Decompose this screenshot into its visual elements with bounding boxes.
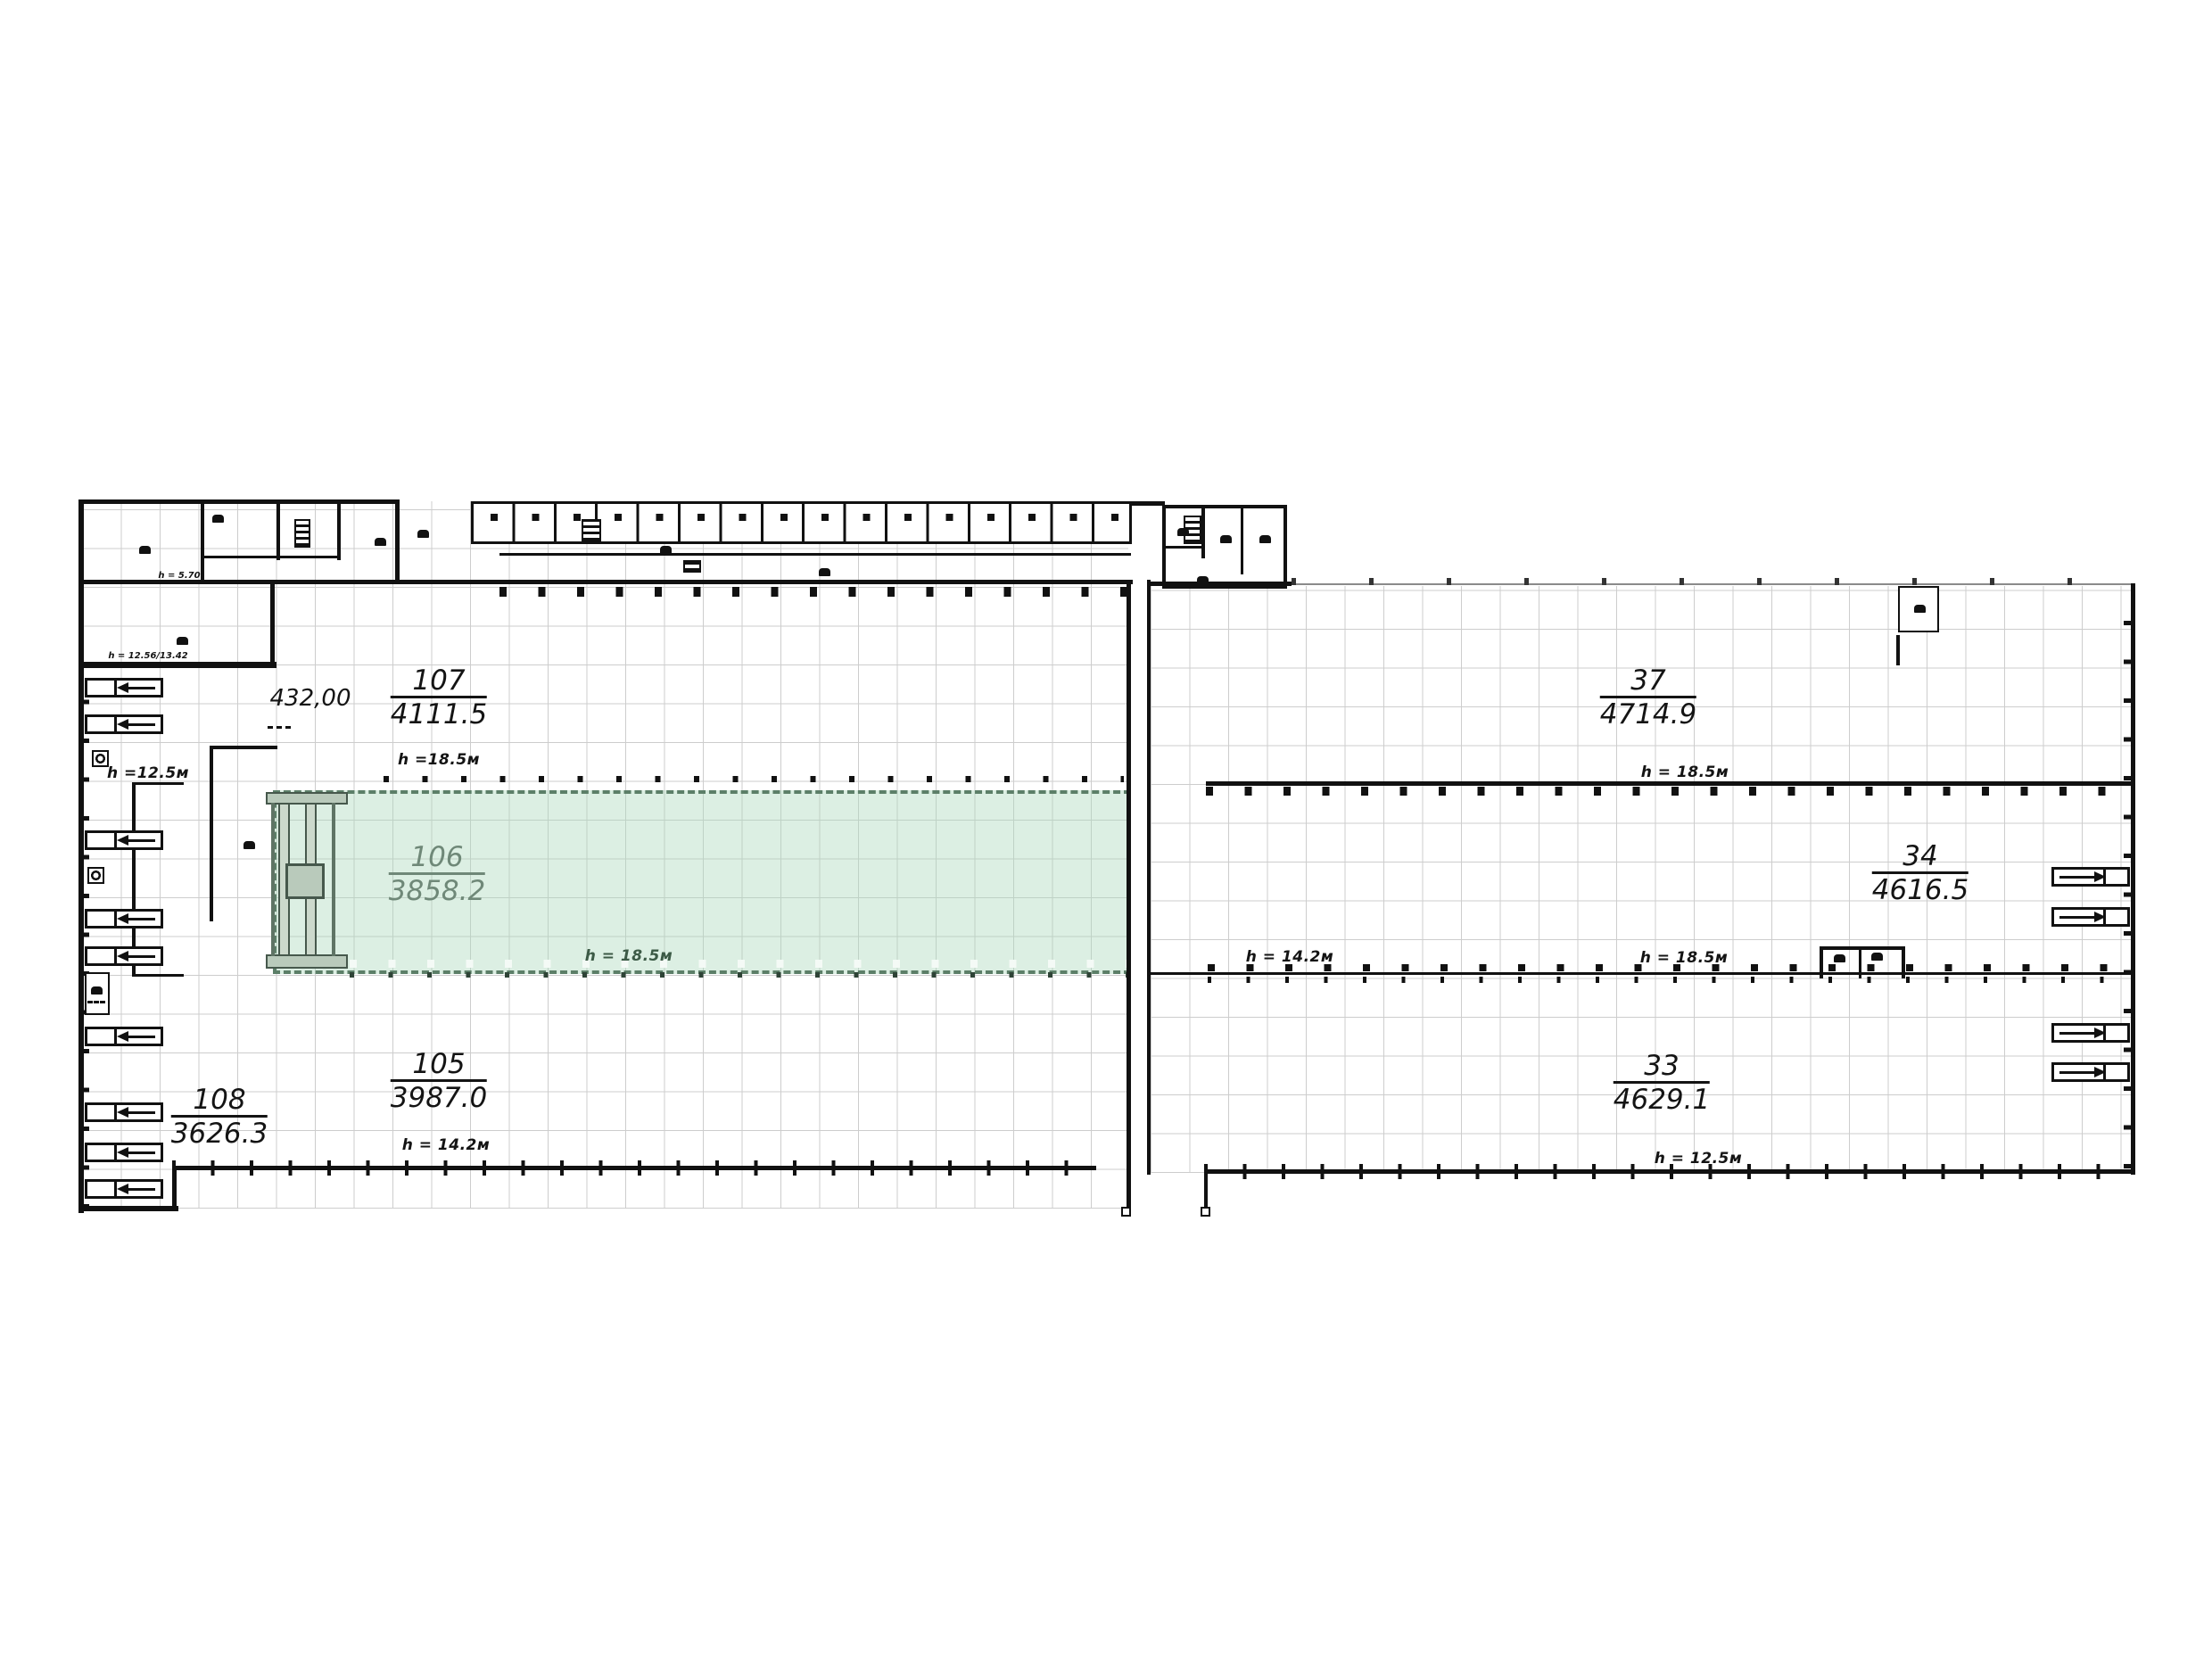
height-label: h = 18.5м	[1640, 949, 1729, 967]
elevation-mark: 432,00	[270, 685, 351, 712]
column-ticks	[350, 972, 1128, 978]
ramp-icon	[294, 519, 310, 548]
wall	[78, 580, 1133, 584]
room-area: 3858.2	[389, 875, 485, 907]
height-label: h = 5.70	[158, 571, 200, 581]
room-label-105: 105 3987.0	[391, 1049, 487, 1114]
wall	[276, 499, 280, 560]
equipment-icon	[375, 538, 386, 546]
wall	[1162, 546, 1203, 549]
arrow-left-icon	[117, 913, 128, 924]
column-ticks	[1292, 578, 2134, 585]
wall	[1896, 635, 1900, 665]
floor-plan: 107 4111.5 h =18.5м 106 3858.2 h = 18.5м…	[0, 0, 2212, 1659]
height-label: h = 18.5м	[1641, 763, 1729, 781]
equipment-icon	[1259, 535, 1271, 543]
wall	[1147, 580, 1151, 1175]
equipment-icon	[417, 530, 429, 538]
room-label-37: 37 4714.9	[1600, 665, 1696, 730]
room-number: 106	[389, 842, 485, 875]
wall	[1241, 505, 1243, 574]
wall	[172, 1166, 177, 1211]
arrow-right-icon	[2094, 1067, 2106, 1077]
wall	[132, 782, 184, 785]
equipment-icon	[139, 546, 151, 554]
office-cell-strip	[471, 501, 1132, 544]
room-number: 105	[391, 1049, 487, 1082]
wall	[270, 580, 275, 667]
dock-door	[85, 1143, 163, 1162]
dock-door	[2051, 1062, 2130, 1082]
column-row	[384, 776, 1124, 782]
equipment-icon	[1177, 528, 1189, 536]
wall	[1902, 946, 1905, 978]
room-label-34: 34 4616.5	[1872, 841, 1969, 906]
wall	[132, 974, 184, 977]
wall	[1149, 972, 2134, 975]
column-row	[1206, 787, 2134, 796]
equipment-icon	[1220, 535, 1232, 543]
column-ticks	[82, 669, 89, 1209]
room-label-108: 108 3626.3	[171, 1085, 268, 1150]
arrow-left-icon	[117, 951, 128, 962]
room-area: 4616.5	[1872, 874, 1969, 906]
equipment-icon	[1871, 953, 1883, 961]
room-area: 4111.5	[391, 698, 487, 730]
dock-door	[85, 1102, 163, 1122]
wall	[210, 747, 213, 921]
level-mark	[268, 726, 291, 729]
height-label: h = 12.56/13.42	[108, 651, 187, 661]
room-area: 3626.3	[171, 1118, 268, 1150]
column-row	[350, 960, 1128, 968]
wall	[1820, 946, 1823, 978]
arrow-right-icon	[2094, 912, 2106, 922]
wall	[1206, 781, 2134, 786]
stairs-icon	[683, 560, 701, 573]
wall	[201, 499, 204, 582]
wall	[201, 556, 341, 558]
height-label: h = 18.5м	[585, 947, 673, 965]
equipment-row	[474, 514, 1129, 521]
dock-door	[85, 909, 163, 929]
wall	[78, 662, 276, 668]
crane-rail-bottom	[266, 954, 348, 969]
door-swing	[87, 1001, 105, 1003]
room-label-33: 33 4629.1	[1614, 1051, 1710, 1116]
equipment-icon	[91, 986, 103, 995]
room-area: 4714.9	[1600, 698, 1696, 730]
height-label: h =18.5м	[398, 751, 480, 769]
room-area: 3987.0	[391, 1082, 487, 1114]
arrow-left-icon	[117, 719, 128, 730]
arrow-left-icon	[117, 1107, 128, 1118]
height-label: h =12.5м	[107, 764, 189, 782]
corridor-wall	[499, 553, 1131, 556]
room-number: 34	[1872, 841, 1969, 874]
column-foot	[1121, 1207, 1131, 1217]
height-label: h = 14.2м	[402, 1136, 491, 1154]
arrow-left-icon	[117, 1184, 128, 1194]
crane-guide	[271, 803, 275, 956]
stairs-icon	[582, 519, 601, 542]
wall	[210, 746, 277, 749]
equipment-icon	[1914, 605, 1926, 613]
arrow-right-icon	[2094, 1028, 2106, 1038]
wall	[1201, 505, 1205, 558]
dock-door	[85, 946, 163, 966]
equipment-icon	[819, 568, 830, 576]
dock-door	[2051, 907, 2130, 927]
height-label: h = 14.2м	[1246, 948, 1334, 966]
dock-door	[85, 678, 163, 697]
arrow-left-icon	[117, 835, 128, 846]
equipment-icon	[1834, 954, 1845, 962]
room-number: 33	[1614, 1051, 1710, 1084]
equipment-icon	[660, 546, 672, 554]
arrow-left-icon	[117, 1147, 128, 1158]
crane-guide	[332, 803, 335, 956]
dock-door	[2051, 867, 2130, 887]
arrow-right-icon	[2094, 871, 2106, 882]
wall	[78, 1206, 178, 1211]
room-number: 107	[391, 665, 487, 698]
wall	[1820, 946, 1905, 950]
crane-carriage	[285, 863, 325, 899]
height-label: h = 12.5м	[1655, 1150, 1743, 1168]
equipment-icon	[212, 515, 224, 523]
wall	[1859, 946, 1861, 978]
equipment-icon	[243, 841, 255, 849]
room-label-106: 106 3858.2	[389, 842, 485, 907]
column-foot	[1201, 1207, 1210, 1217]
equipment-icon	[1197, 576, 1209, 584]
dock-door	[85, 1179, 163, 1199]
wall	[395, 499, 400, 584]
room-label-107: 107 4111.5	[391, 665, 487, 730]
arrow-left-icon	[117, 1031, 128, 1042]
wall	[1147, 582, 1292, 586]
arrow-left-icon	[117, 682, 128, 693]
room-area: 4629.1	[1614, 1084, 1710, 1116]
column-row	[499, 587, 1131, 597]
wall	[1127, 580, 1131, 1215]
wall	[78, 499, 400, 504]
wall	[1129, 501, 1165, 506]
room-number: 37	[1600, 665, 1696, 698]
dock-door	[2051, 1023, 2130, 1043]
dock-door	[85, 714, 163, 734]
column-ticks	[1208, 977, 2134, 983]
shaft-icon	[87, 867, 104, 884]
dock-door	[85, 830, 163, 850]
equipment-icon	[177, 637, 188, 645]
column-ticks	[172, 1160, 1096, 1176]
room-number: 108	[171, 1085, 268, 1118]
dock-door	[85, 1027, 163, 1046]
wall	[2131, 583, 2135, 1175]
wall	[337, 499, 341, 560]
